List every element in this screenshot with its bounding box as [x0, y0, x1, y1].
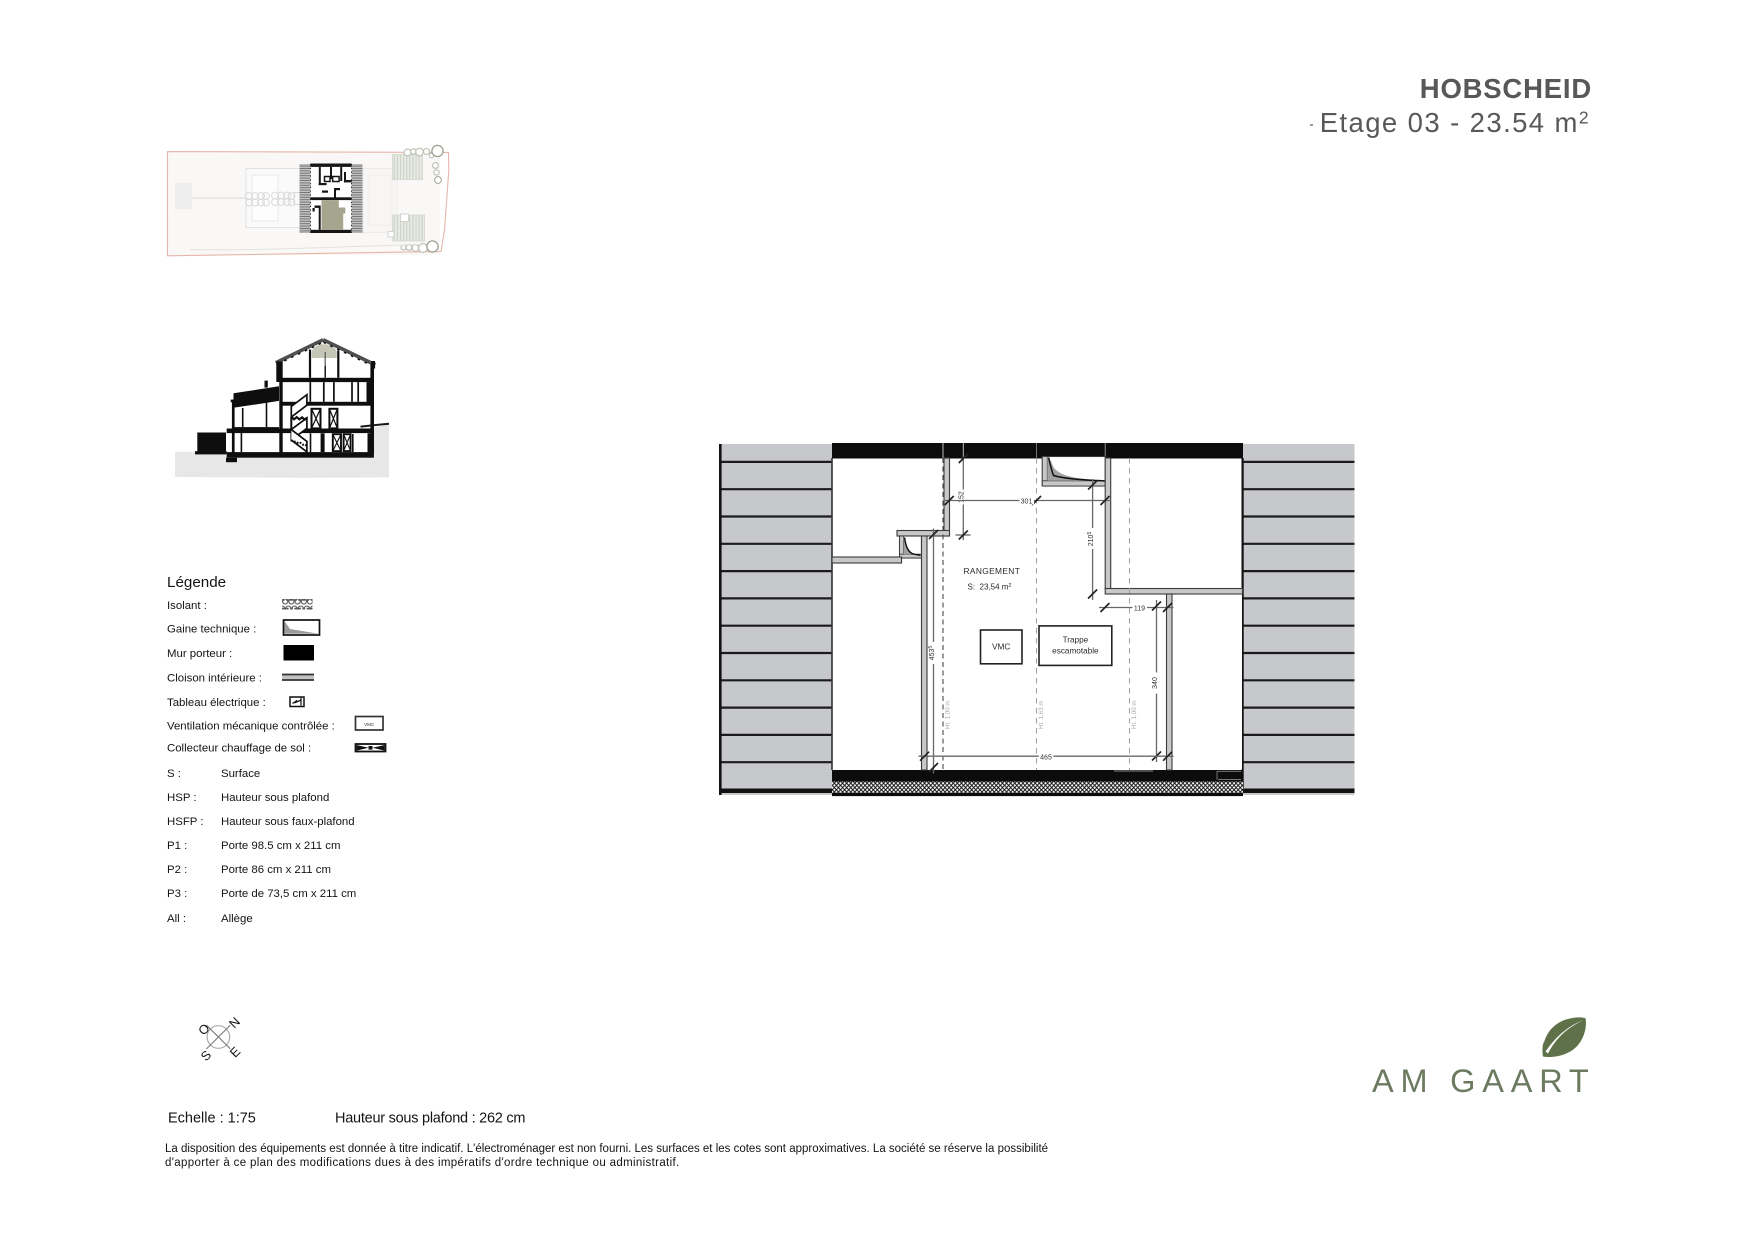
svg-text:RANGEMENT: RANGEMENT [964, 566, 1021, 576]
svg-text:Ht. 1,00 m: Ht. 1,00 m [1131, 700, 1138, 729]
svg-text:VMC: VMC [992, 642, 1010, 652]
svg-text:P2 :: P2 : [167, 864, 187, 876]
svg-text:d'apporter à ce plan des modif: d'apporter à ce plan des modifications d… [165, 1157, 680, 1169]
svg-text:escamotable: escamotable [1052, 647, 1099, 656]
svg-text:AM GAART: AM GAART [1372, 1063, 1596, 1099]
svg-text:Gaine technique :: Gaine technique : [167, 624, 256, 636]
svg-text:Porte de 73,5 cm x 211 cm: Porte de 73,5 cm x 211 cm [221, 888, 356, 900]
svg-text:465: 465 [1040, 754, 1052, 761]
svg-text:Porte 86 cm x 211 cm: Porte 86 cm x 211 cm [221, 864, 331, 876]
svg-text:Surface: Surface [221, 768, 260, 780]
svg-text:All :: All : [167, 913, 186, 925]
svg-text:Hauteur sous faux-plafond: Hauteur sous faux-plafond [221, 816, 355, 828]
svg-text:Allège: Allège [221, 913, 253, 925]
svg-text:Collecteur chauffage de sol :: Collecteur chauffage de sol : [167, 743, 311, 755]
svg-text:340: 340 [1152, 677, 1159, 689]
svg-text:P3 :: P3 : [167, 888, 187, 900]
svg-text:Tableau électrique :: Tableau électrique : [167, 697, 266, 709]
svg-text:Mur porteur :: Mur porteur : [167, 648, 232, 660]
svg-text:Cloison intérieure :: Cloison intérieure : [167, 673, 262, 685]
svg-text:Hauteur sous plafond: Hauteur sous plafond [221, 792, 329, 804]
svg-text:Ventilation mécanique contrôlé: Ventilation mécanique contrôlée : [167, 721, 335, 733]
svg-text:P1 :: P1 : [167, 840, 187, 852]
svg-text:La disposition des équipements: La disposition des équipements est donné… [165, 1143, 1048, 1155]
svg-text:Porte 98.5 cm x 211 cm: Porte 98.5 cm x 211 cm [221, 840, 340, 852]
svg-text:Hauteur sous plafond : 262 cm: Hauteur sous plafond : 262 cm [335, 1111, 525, 1127]
svg-text:Trappe: Trappe [1063, 636, 1089, 645]
svg-text:HSP :: HSP : [167, 792, 197, 804]
svg-text:S: 23,54 m2: S: 23,54 m2 [968, 583, 1012, 592]
svg-text:Isolant :: Isolant : [167, 600, 207, 612]
svg-text:HSFP :: HSFP : [167, 816, 204, 828]
svg-text:Légende: Légende [167, 574, 226, 591]
svg-text:VMC: VMC [364, 722, 375, 727]
svg-text:119: 119 [1134, 606, 1145, 613]
svg-text:S :: S : [167, 768, 181, 780]
svg-text:Ht. 1,63 m: Ht. 1,63 m [1038, 700, 1045, 729]
svg-text:Ht. 1,00 m: Ht. 1,00 m [945, 700, 952, 729]
svg-text:301: 301 [1021, 498, 1033, 505]
svg-text:HOBSCHEID: HOBSCHEID [1420, 73, 1592, 104]
svg-text:Echelle : 1:75: Echelle : 1:75 [168, 1111, 256, 1127]
svg-text:Etage 03 - 23.54 m2: Etage 03 - 23.54 m2 [1320, 107, 1590, 138]
